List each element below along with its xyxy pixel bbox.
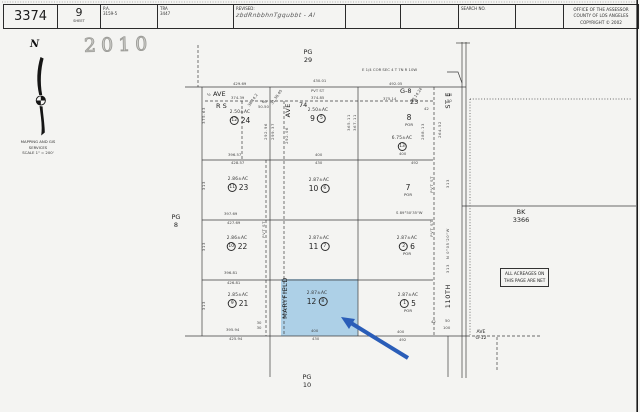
parcel-por-label: POR	[404, 192, 412, 197]
dim: 492	[399, 338, 406, 343]
parcel-lot-number: 8	[407, 113, 412, 122]
dim: 100	[445, 93, 452, 98]
street-ave-central: AVE	[285, 103, 293, 117]
dim: 429.69	[233, 82, 246, 87]
dim: 395.94	[226, 328, 239, 333]
parcel-lot-number: 10	[309, 184, 319, 193]
parcel-lot-number: 24	[241, 116, 251, 125]
parcel-circle-number: 8	[318, 297, 327, 306]
parcel-lot-number: 5	[411, 299, 416, 308]
quarter-corner-note: E 1/4 COR SEC 4 T 7N R 10W	[362, 68, 417, 73]
bk-3366: BK 3366	[513, 209, 530, 225]
selection-arrow	[341, 317, 408, 358]
parcel-lot-number: 23	[239, 183, 249, 192]
parcel-lot-5: 2.87±AC15POR	[398, 293, 418, 313]
map-line	[37, 57, 43, 95]
dim: 400	[397, 330, 404, 335]
dim: 492	[411, 161, 418, 166]
parcel-acreage: 6.75±AC	[392, 136, 412, 141]
parcel-number-row: 1022	[227, 242, 248, 251]
dim: 292.96	[264, 123, 269, 140]
parcel-acreage: 2.87±AC	[397, 236, 417, 241]
parcel-acreage: 2.87±AC	[398, 293, 418, 298]
year-stamp: 2010	[84, 33, 153, 57]
dim: 313	[446, 264, 451, 273]
rs-note: R S	[216, 103, 227, 111]
dim: 374.39	[231, 96, 244, 101]
parcel-lot-number: 6	[410, 242, 415, 251]
map-canvas: 2010 N MAPPING AND GIS SERVICES SCALE 1"…	[0, 0, 640, 412]
north-letter: N	[30, 39, 39, 50]
dim: 375.14	[383, 97, 396, 102]
parcel-lot-6: 2.87±AC26POR	[397, 236, 417, 256]
parcel-acreage: 2.87±AC	[309, 236, 330, 241]
acreage-note-box: ALL ACREAGES ON THIS PAGE ARE NET	[500, 268, 549, 287]
dim: 50	[447, 99, 452, 104]
dim: 313	[202, 181, 207, 190]
ave-g8-label: G-8	[400, 88, 412, 96]
pvt-st-right-upper: PVT ST	[430, 176, 435, 193]
parcel-circle-number: 6	[320, 184, 329, 193]
map-line	[36, 101, 41, 106]
parcel-lot-number: 11	[309, 242, 319, 251]
assessor-map-page: 3374 9 SHEET P.A. 3159-5 TRA 3447 REVISE…	[0, 0, 640, 412]
parcel-number-row: 8	[405, 113, 413, 122]
parcel-acreage: 2.87±AC	[307, 291, 328, 296]
dim: 396.81	[224, 271, 237, 276]
map-linework	[0, 0, 640, 412]
parcel-por-label: POR	[398, 308, 418, 313]
dim: 492.05	[389, 82, 402, 87]
parcel-number-row: 7	[404, 183, 412, 192]
dim: 430	[315, 161, 322, 166]
dim: 400	[315, 153, 322, 158]
parcel-number-row: 15	[398, 299, 418, 308]
dim: 292.06	[285, 127, 290, 144]
pg-8: PG 8	[172, 214, 181, 230]
parcel-circle-number: 5	[317, 114, 326, 123]
parcel-number-row: 921	[228, 299, 249, 308]
gis-caption: MAPPING AND GIS SERVICES SCALE 1" = 200'	[21, 139, 56, 156]
dim: 313	[446, 179, 451, 188]
street-maryfield: MARYFIELD	[282, 277, 290, 319]
dim: 50	[445, 319, 450, 324]
dim: 42	[431, 320, 436, 325]
dim: 313	[202, 301, 207, 310]
parcel-number-row: 128	[307, 297, 328, 306]
parcel-number-row: 1224	[230, 116, 251, 125]
ave-west-label: AVE	[213, 91, 226, 99]
dim: 42	[424, 107, 429, 112]
dim: 313	[202, 242, 207, 251]
pg-10: PG 10	[303, 374, 312, 390]
dim: 367.11	[353, 114, 358, 131]
parcel-lot-23: 2.86±AC1123	[228, 177, 249, 192]
dim: 430	[312, 337, 319, 342]
dim: 400	[311, 329, 318, 334]
parcel-lot-number: 21	[239, 299, 249, 308]
dim: 428.57	[231, 161, 244, 166]
parcel-lot-number: 12	[307, 297, 317, 306]
highlighted-parcel-region	[281, 279, 358, 336]
parcel-circle-number: 7	[320, 242, 329, 251]
parcel-lot-number: 9	[310, 114, 315, 123]
parcel-acreage: 2.86±AC	[227, 236, 248, 241]
map-line	[40, 106, 45, 136]
parcel-acreage: 2.50±AC	[230, 110, 251, 115]
dim: 299.37	[271, 123, 276, 140]
parcel-number-row: 106	[309, 184, 330, 193]
pg-29: PG 29	[304, 49, 313, 65]
dim: 100	[443, 326, 450, 331]
parcel-lot-22: 2.86±AC1022	[227, 236, 248, 251]
dim: 374.85	[311, 96, 324, 101]
parcel-number-row: 117	[309, 242, 330, 251]
ave-west-prefix: ½	[207, 93, 211, 98]
parcel-circle-number: 10	[227, 242, 236, 251]
dim: 425.94	[229, 337, 242, 342]
quarter-corner-pointer	[447, 72, 462, 83]
dim: 430.01	[313, 79, 326, 84]
dim: 375.63	[202, 107, 207, 124]
bearing: S 89°50'35"W	[396, 211, 423, 216]
parcel-lot-number: 22	[238, 242, 248, 251]
pvt-st-central: PVT ST	[262, 221, 267, 238]
map-line	[41, 96, 46, 101]
pvt-st-top: PVT ST	[311, 89, 324, 94]
dim: 396.57	[228, 153, 241, 158]
street-110th: 110TH	[445, 284, 453, 308]
parcel-lot-11: 2.87±AC117	[309, 236, 330, 251]
north-arrow-icon	[36, 57, 45, 136]
parcel-acreage: 2.85±AC	[228, 293, 249, 298]
dim: 288.13	[421, 123, 426, 140]
ave-g12-label: AVE G-12	[475, 330, 486, 341]
parcel-circle-number: 12	[230, 116, 239, 125]
parcel-circle-number: 2	[399, 242, 408, 251]
parcel-acreage: 2.86±AC	[228, 177, 249, 182]
parcel-number-row: 95	[308, 114, 328, 123]
dim: 397.69	[224, 212, 237, 217]
parcel-lot-12: 2.87±AC128	[307, 291, 328, 306]
bearing: N 0°05'20"W	[446, 228, 451, 259]
parcel-por-label: POR	[397, 251, 417, 256]
parcel-number-row: 1123	[228, 183, 249, 192]
parcel-acreage: 2.87±AC	[309, 178, 330, 183]
dim: 365.11	[347, 114, 352, 131]
dim: 50.50	[258, 105, 269, 110]
parcel-lot-10: 2.87±AC106	[309, 178, 330, 193]
parcel-number-row: 13	[392, 142, 412, 151]
parcel-lot-21: 2.85±AC921	[228, 293, 249, 308]
parcel-lot-13: 6.75±AC13	[392, 136, 412, 151]
parcel-number-row: 26	[397, 242, 417, 251]
dim: 426.81	[227, 281, 240, 286]
tract-74: 74	[299, 102, 307, 110]
parcel-lot-7: 7POR	[404, 182, 412, 197]
dim: 427.69	[227, 221, 240, 226]
dim: 30 30	[257, 321, 262, 330]
parcel-lot-9: 2.50±AC95	[308, 108, 328, 123]
parcel-por-label: POR	[405, 122, 413, 127]
pvt-st-right-lower: PVT ST	[430, 220, 435, 237]
parcel-circle-number: 1	[400, 299, 409, 308]
parcel-circle-number: 9	[228, 299, 237, 308]
parcel-circle-number: 11	[228, 183, 237, 192]
dim: 400	[399, 152, 406, 157]
dim: 264.52	[438, 121, 443, 138]
parcel-acreage: 2.50±AC	[308, 108, 328, 113]
parcel-lot-number: 7	[406, 183, 411, 192]
parcel-lot-24: 2.50±AC1224	[230, 110, 251, 125]
parcel-lot-8: 8POR	[405, 112, 413, 127]
parcel-circle-number: 13	[398, 142, 407, 151]
